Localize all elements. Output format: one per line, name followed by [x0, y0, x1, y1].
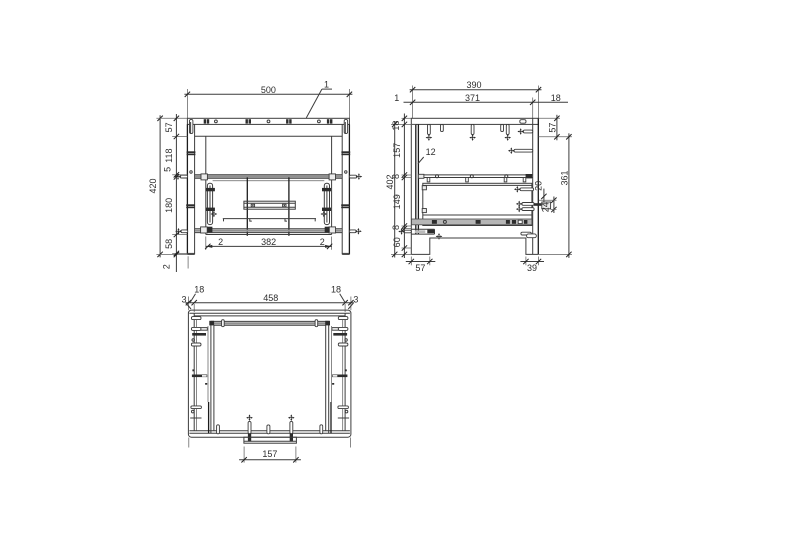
svg-text:57: 57: [547, 123, 557, 133]
svg-text:18: 18: [331, 284, 341, 294]
svg-text:458: 458: [263, 293, 278, 303]
svg-text:39: 39: [527, 263, 537, 273]
svg-text:157: 157: [392, 143, 402, 158]
svg-text:1: 1: [324, 79, 329, 89]
svg-text:2: 2: [218, 237, 223, 247]
svg-text:420: 420: [148, 178, 158, 193]
svg-text:500: 500: [261, 85, 276, 95]
svg-text:5: 5: [163, 167, 173, 172]
svg-text:390: 390: [466, 80, 481, 90]
svg-text:60: 60: [392, 237, 402, 247]
svg-text:2: 2: [320, 237, 325, 247]
svg-text:18: 18: [391, 121, 401, 131]
svg-text:20: 20: [533, 181, 543, 191]
svg-text:180: 180: [164, 198, 174, 213]
svg-text:57: 57: [164, 122, 174, 132]
svg-text:24: 24: [540, 202, 550, 212]
svg-text:361: 361: [559, 170, 569, 185]
svg-text:157: 157: [262, 449, 277, 459]
svg-text:18: 18: [551, 93, 561, 103]
svg-text:402: 402: [385, 174, 395, 189]
svg-text:3: 3: [181, 295, 186, 305]
svg-text:8: 8: [391, 225, 401, 230]
svg-text:57: 57: [415, 263, 425, 273]
svg-text:371: 371: [465, 93, 480, 103]
svg-text:12: 12: [426, 147, 436, 157]
svg-text:58: 58: [164, 239, 174, 249]
svg-text:2: 2: [161, 264, 171, 269]
svg-text:118: 118: [164, 148, 174, 162]
svg-text:1: 1: [394, 93, 399, 103]
svg-text:149: 149: [392, 194, 402, 209]
svg-text:18: 18: [194, 284, 204, 294]
svg-text:382: 382: [261, 237, 276, 247]
svg-text:3: 3: [353, 295, 358, 305]
